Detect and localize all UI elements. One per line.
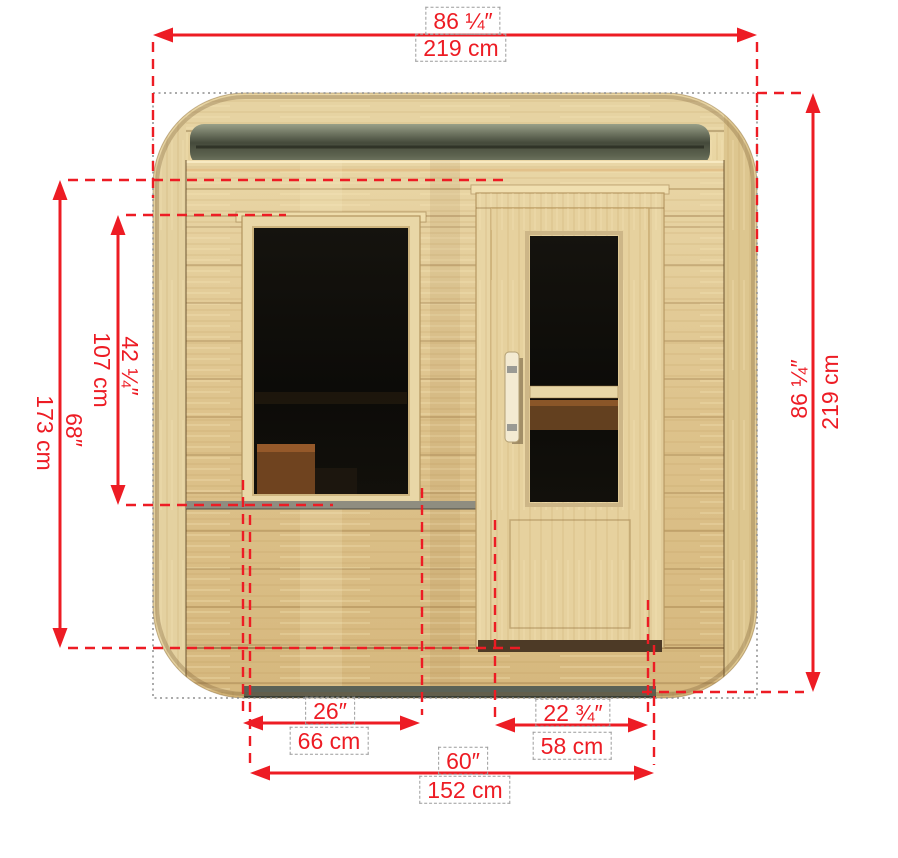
dim-span-width-inches-label: 60″ — [438, 747, 488, 775]
dim-span-width-cm-label: 152 cm — [419, 776, 510, 804]
door-threshold — [478, 640, 662, 652]
arrowhead-right — [634, 766, 654, 781]
arrowhead-up — [53, 180, 68, 200]
arrowhead-up — [806, 93, 821, 113]
dim-overall-width-inches-label: 86 ¼″ — [425, 7, 500, 35]
dim-overall-height-inches-label: 86 ¼″ — [786, 359, 812, 418]
dim-window-height-inches-label: 42 ¼″ — [117, 336, 143, 395]
arrowhead-down — [53, 628, 68, 648]
dim-wall-height-inches-label: 68″ — [61, 413, 87, 447]
door-glass — [530, 236, 618, 502]
diagram-canvas — [0, 0, 898, 858]
door — [471, 185, 669, 652]
dim-window-height-cm-label: 107 cm — [89, 332, 115, 407]
arrowhead-left — [153, 28, 173, 43]
dim-window-width-cm-label: 66 cm — [290, 727, 369, 755]
arrowhead-down — [111, 485, 126, 505]
arrowhead-right — [737, 28, 757, 43]
arrowhead-right — [400, 716, 420, 731]
dim-door-width-inches-label: 22 ¾″ — [535, 699, 610, 727]
dim-window-width-inches-label: 26″ — [305, 697, 355, 725]
dim-door-width-cm-label: 58 cm — [533, 732, 612, 760]
dim-overall-height-cm-label: 219 cm — [817, 354, 843, 429]
door-interior-bench — [530, 400, 618, 430]
door-handle — [505, 352, 523, 444]
window — [236, 212, 426, 506]
arrowhead-left — [495, 718, 515, 733]
arrowhead-right — [628, 718, 648, 733]
dim-overall-width-cm-label: 219 cm — [415, 34, 506, 62]
arrowhead-up — [111, 215, 126, 235]
roof-recess-shadow — [190, 124, 710, 166]
arrowhead-left — [243, 716, 263, 731]
arrowhead-left — [250, 766, 270, 781]
dimension-diagram: 86 ¼″ 219 cm 86 ¼″ 219 cm 68″ 173 cm 42 … — [0, 0, 898, 858]
dim-wall-height-cm-label: 173 cm — [32, 395, 58, 470]
door-glass-muntin — [530, 386, 618, 398]
arrowhead-down — [806, 672, 821, 692]
